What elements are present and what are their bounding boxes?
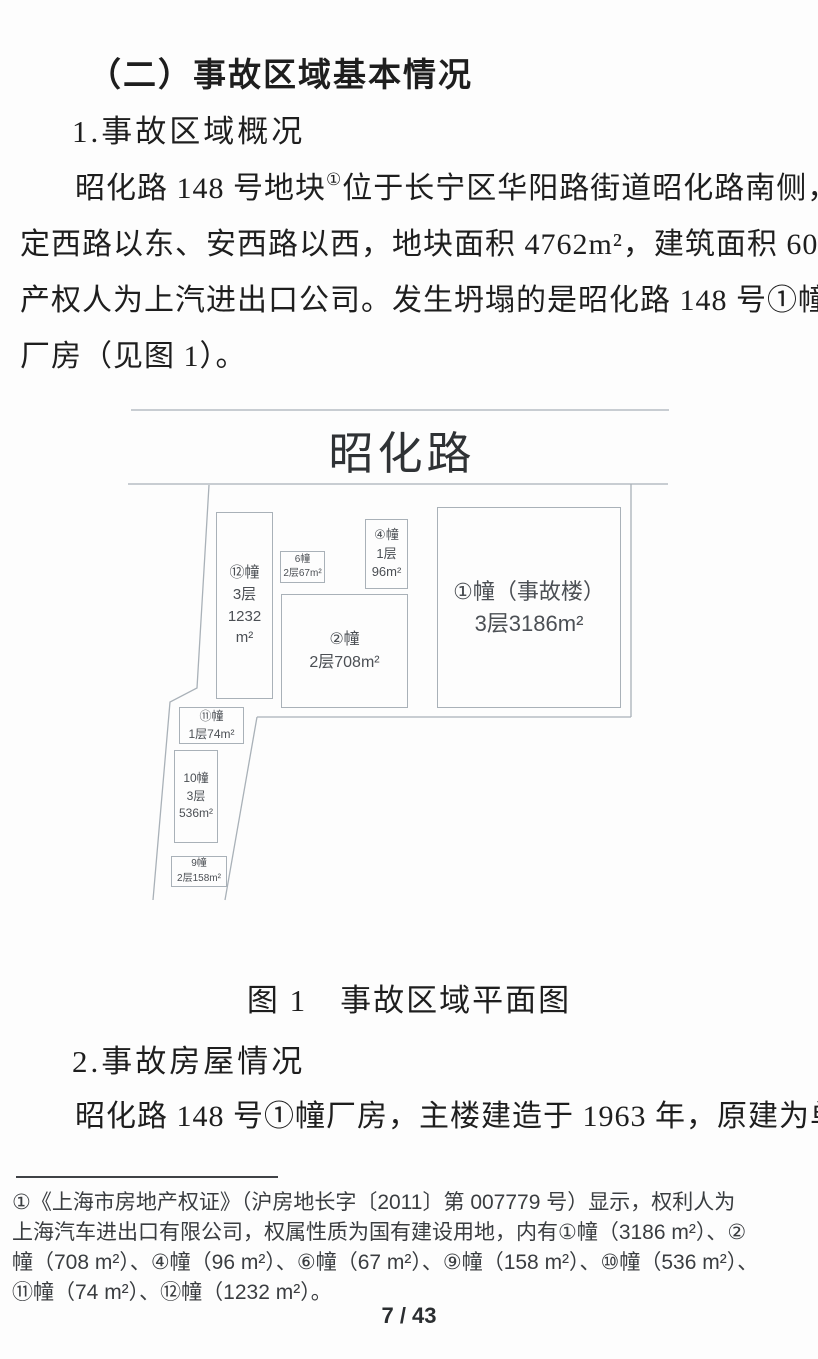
site-boundary-diagonal-line — [225, 717, 257, 900]
paragraph-1-line-1-rest: 位于长宁区华阳路街道昭化路南侧， — [342, 172, 818, 205]
figure-caption: 图 1 事故区域平面图 — [0, 975, 818, 1020]
paragraph-1-line-1: 昭化路 148 号地块①位于长宁区华阳路街道昭化路南侧， — [75, 163, 818, 207]
page-number: 7 / 43 — [0, 1303, 818, 1329]
building-11: ⑪幢 1层74m² — [179, 707, 244, 744]
building-12: ⑫幢 3层 1232 m² — [216, 512, 273, 699]
building-2-label: ②幢 2层708m² — [309, 628, 379, 674]
building-10-label: 10幢 3层 536m² — [179, 770, 213, 822]
subsection-2-title: 2.事故房屋情况 — [72, 1036, 305, 1081]
building-11-label: ⑪幢 1层74m² — [188, 708, 234, 743]
footnote: ①《上海市房地产权证》（沪房地长字〔2011〕第 007779 号）显示，权利人… — [12, 1188, 806, 1308]
footnote-reference-marker: ① — [326, 170, 342, 189]
section-heading: （二）事故区域基本情况 — [88, 48, 473, 96]
building-1-label: ①幢（事故楼） 3层3186m² — [453, 576, 605, 640]
site-plan-figure: 昭化路 ①幢（事故楼） 3层3186m² ②幢 2层708m² ④幢 1层 96… — [128, 403, 676, 951]
paragraph-1-line-1-text: 昭化路 148 号地块 — [75, 172, 326, 205]
building-4-label: ④幢 1层 96m² — [372, 526, 402, 583]
building-6-label: 6幢 2层67m² — [283, 553, 321, 582]
subsection-1-title: 1.事故区域概况 — [72, 106, 305, 151]
building-1: ①幢（事故楼） 3层3186m² — [437, 507, 621, 708]
road-name-label: 昭化路 — [128, 417, 676, 482]
building-9-label: 9幢 2层158m² — [177, 857, 221, 886]
building-4: ④幢 1层 96m² — [365, 519, 408, 589]
footnote-line-2: 上海汽车进出口有限公司，权属性质为国有建设用地，内有①幢（3186 m²）、② — [12, 1218, 806, 1248]
footnote-line-3: 幢（708 m²）、④幢（96 m²）、⑥幢（67 m²）、⑨幢（158 m²）… — [12, 1248, 806, 1278]
footnote-separator — [16, 1176, 278, 1178]
paragraph-1-line-2: 定西路以东、安西路以西，地块面积 4762m²，建筑面积 6057m²。 — [20, 219, 818, 263]
document-page: （二）事故区域基本情况 1.事故区域概况 昭化路 148 号地块①位于长宁区华阳… — [0, 0, 818, 1359]
paragraph-1-line-4: 厂房（见图 1）。 — [20, 331, 247, 375]
building-6: 6幢 2层67m² — [280, 551, 325, 583]
building-2: ②幢 2层708m² — [281, 594, 408, 708]
building-12-label: ⑫幢 3层 1232 m² — [228, 562, 261, 649]
building-9: 9幢 2层158m² — [171, 856, 227, 887]
footnote-line-1: ①《上海市房地产权证》（沪房地长字〔2011〕第 007779 号）显示，权利人… — [12, 1188, 806, 1218]
paragraph-1-line-3: 产权人为上汽进出口公司。发生坍塌的是昭化路 148 号①幢 — [20, 275, 818, 319]
paragraph-2-line-1: 昭化路 148 号①幢厂房，主楼建造于 1963 年，原建为单 — [75, 1091, 818, 1135]
building-10: 10幢 3层 536m² — [174, 750, 218, 843]
